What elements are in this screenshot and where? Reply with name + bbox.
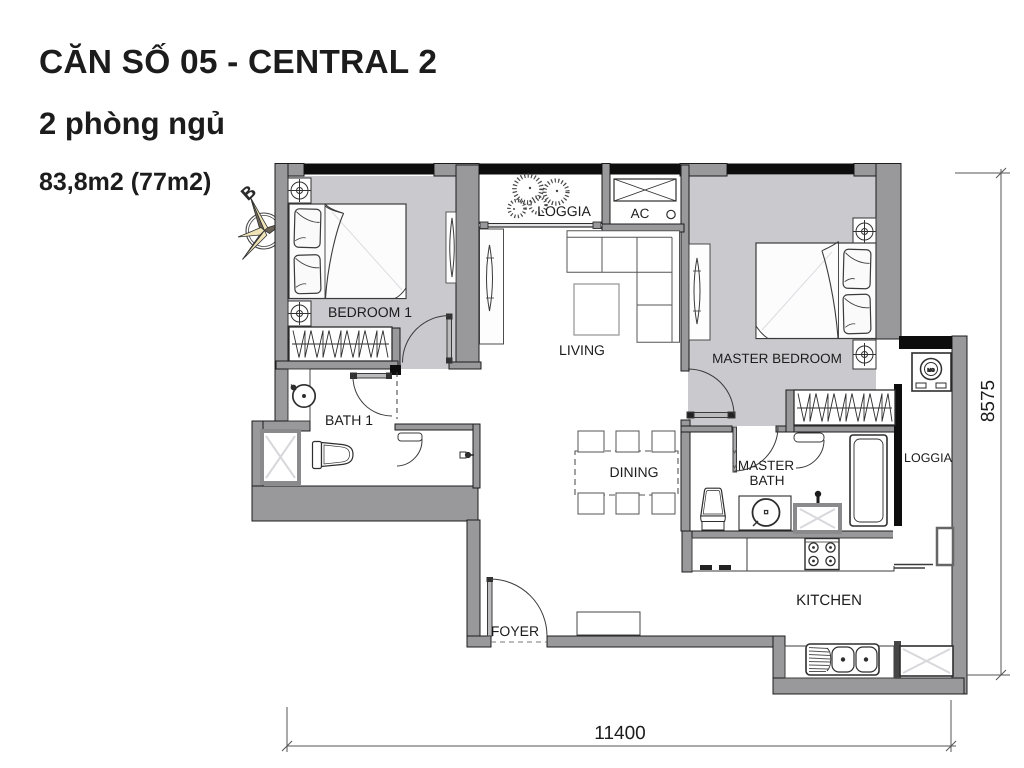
svg-text:KITCHEN: KITCHEN (796, 592, 862, 609)
svg-text:MASTER: MASTER (738, 458, 795, 473)
svg-text:8575: 8575 (978, 380, 999, 422)
svg-text:AC: AC (631, 206, 650, 221)
svg-text:DINING: DINING (610, 464, 659, 480)
svg-text:MASTER BEDROOM: MASTER BEDROOM (712, 351, 842, 366)
svg-text:BEDROOM 1: BEDROOM 1 (328, 304, 412, 320)
svg-text:LIVING: LIVING (559, 342, 605, 358)
svg-text:11400: 11400 (594, 723, 645, 744)
svg-text:LOGGIA: LOGGIA (537, 203, 591, 219)
svg-text:CĂN SỐ 05 - CENTRAL 2: CĂN SỐ 05 - CENTRAL 2 (39, 42, 437, 81)
svg-text:83,8m2 (77m2): 83,8m2 (77m2) (39, 168, 211, 196)
svg-text:MG: MG (927, 368, 935, 373)
svg-text:2 phòng ngủ: 2 phòng ngủ (39, 106, 225, 141)
svg-text:BATH: BATH (749, 473, 784, 488)
svg-text:BATH 1: BATH 1 (325, 412, 373, 428)
svg-text:LOGGIA: LOGGIA (904, 451, 953, 465)
svg-text:FOYER: FOYER (491, 623, 539, 639)
